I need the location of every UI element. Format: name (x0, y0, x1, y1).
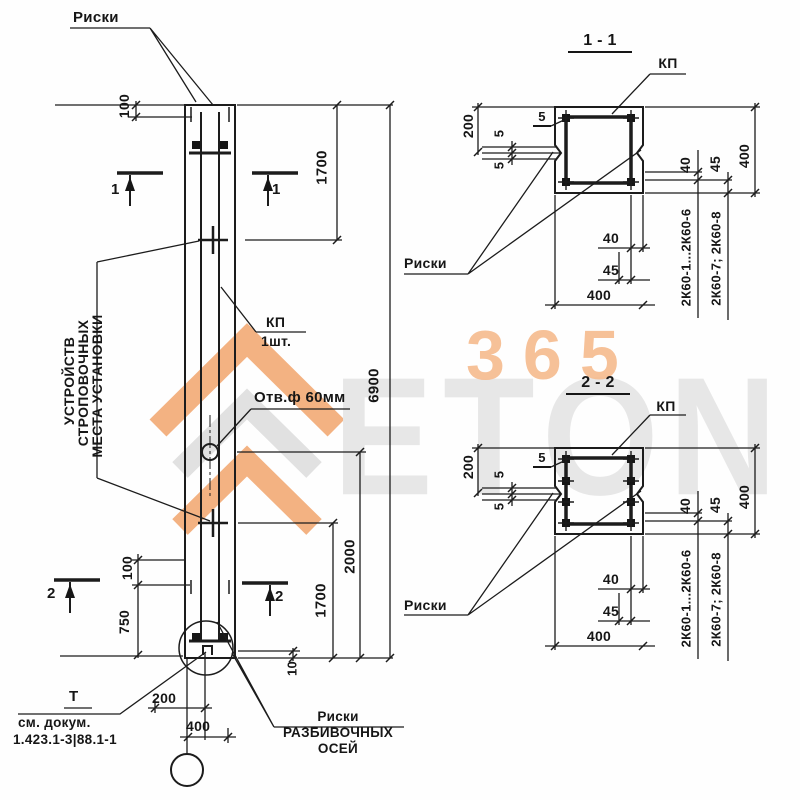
dim-1700-lower: 1700 (314, 581, 329, 621)
dim-200-axis: 200 (152, 691, 176, 705)
column-elevation (171, 105, 235, 786)
marks-top-label: Риски (73, 10, 119, 25)
s1-dim-5-upper: 5 (493, 126, 506, 142)
section-rebar-dots (562, 114, 635, 186)
doc-reference-line2: 1.423.1-3|88.1-1 (13, 732, 117, 748)
section-cut-1-right-num: 1 (272, 182, 281, 197)
dim-2000: 2000 (343, 537, 358, 577)
drawing-canvas: ETON 365 (0, 0, 800, 800)
s1-dim-45-right: 45 (708, 152, 722, 176)
s2-dim-5-lower: 5 (493, 499, 506, 515)
section-2-2-title: 2 - 2 (566, 375, 630, 395)
doc-reference-line1: см. докум. (18, 715, 91, 731)
s2-dim-5-cover: 5 (533, 451, 551, 468)
section-1-1-title: 1 - 1 (568, 33, 632, 53)
axis-bubble (171, 754, 203, 786)
kp-callout-qty: 1шт. (261, 334, 291, 348)
section-cut-2-left-num: 2 (47, 586, 56, 601)
section-cut-2-right-num: 2 (275, 589, 284, 604)
dim-750: 750 (117, 604, 131, 640)
s2-dim-200: 200 (461, 449, 475, 485)
s2-dim-5-upper: 5 (493, 467, 506, 483)
dim-100-top: 100 (117, 86, 131, 126)
kp-callout-label: КП (266, 315, 285, 329)
s1-dim-40-bottom: 40 (598, 231, 624, 245)
dim-100-bottom: 100 (120, 548, 134, 588)
strop-note-line3: УСТРОЙСТВ (62, 296, 76, 466)
section-2-2 (404, 415, 760, 661)
s1-dim-45-bottom: 45 (598, 263, 624, 277)
s1-dim-400-right: 400 (737, 138, 751, 174)
axes-note-line1: Риски (272, 709, 404, 725)
dimension-ticks (132, 101, 394, 741)
s1-dim-5-cover: 5 (533, 110, 551, 127)
s2-dim-45-right: 45 (708, 493, 722, 517)
s1-dim-400-bottom: 400 (581, 288, 617, 302)
s2-dim-40-right: 40 (678, 494, 692, 518)
strop-note-line2: СТРОПОВОЧНЫХ (76, 298, 90, 468)
dim-6900-total: 6900 (367, 364, 382, 408)
section-1-1-marks-label: Риски (404, 256, 447, 270)
s2-series-range-2: 2К60-7; 2К60-8 (710, 538, 723, 662)
section-2-2-kp-label: КП (648, 399, 684, 413)
dim-400-width: 400 (186, 719, 210, 733)
axes-note-line3: ОСЕЙ (272, 741, 404, 757)
hole-callout: Отв.ф 60мм (254, 390, 346, 405)
s2-dim-40-bottom: 40 (598, 572, 624, 586)
s1-series-range-2: 2К60-7; 2К60-8 (710, 197, 723, 321)
strop-cross-marks (198, 226, 228, 537)
elevation-dimension-lines (132, 101, 394, 741)
dim-1700-upper: 1700 (315, 148, 330, 188)
section-1-1 (404, 74, 760, 320)
s1-dim-200: 200 (461, 108, 475, 144)
section-1-1-kp-label: КП (650, 56, 686, 70)
axes-marks-note: Риски РАЗБИВОЧНЫХ ОСЕЙ (272, 709, 404, 757)
column-rebar-lines (201, 112, 219, 641)
s2-dim-400-right: 400 (737, 479, 751, 515)
s2-dim-45-bottom: 45 (598, 604, 624, 618)
end-face-mark: Т (69, 689, 78, 704)
axes-note-line2: РАЗБИВОЧНЫХ (272, 725, 404, 741)
section-2-2-marks-label: Риски (404, 598, 447, 612)
section-cut-1-left-num: 1 (111, 182, 120, 197)
elevation-extension-lines (55, 105, 393, 743)
section-rebar-dots (562, 455, 635, 527)
dim-10: 10 (286, 658, 299, 680)
s1-series-range-1: 2К60-1...2К60-6 (680, 196, 693, 320)
strop-note-line1: МЕСТА УСТАНОВКИ (90, 301, 104, 471)
s1-dim-40-right: 40 (678, 153, 692, 177)
s2-dim-400-bottom: 400 (581, 629, 617, 643)
s1-dim-5-lower: 5 (493, 158, 506, 174)
s2-series-range-1: 2К60-1...2К60-6 (680, 537, 693, 661)
